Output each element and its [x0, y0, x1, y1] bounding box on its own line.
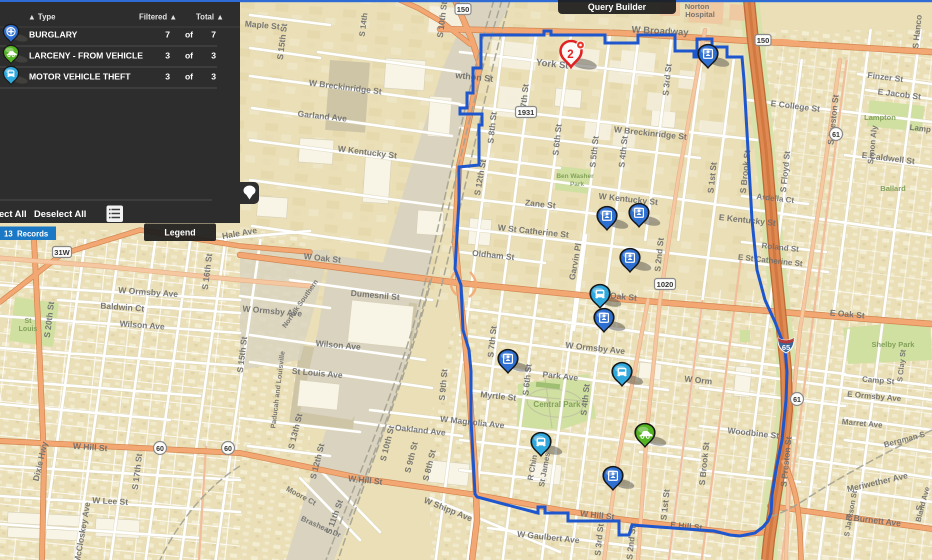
svg-text:1020: 1020 [657, 280, 674, 289]
svg-text:Ballard: Ballard [880, 184, 906, 193]
svg-text:LARCENY - FROM VEHICLE: LARCENY - FROM VEHICLE [29, 51, 143, 61]
svg-text:7: 7 [211, 30, 216, 40]
svg-text:of: of [185, 51, 193, 61]
svg-text:of: of [185, 30, 193, 40]
svg-text:61: 61 [793, 397, 801, 404]
svg-text:65: 65 [782, 343, 790, 352]
svg-text:Louis: Louis [19, 326, 38, 333]
svg-text:3: 3 [165, 72, 170, 82]
svg-text:150: 150 [757, 36, 770, 45]
svg-text:Park: Park [570, 181, 584, 188]
svg-text:61: 61 [832, 132, 840, 139]
svg-text:BURGLARY: BURGLARY [29, 30, 78, 40]
svg-text:▲ Type: ▲ Type [28, 13, 56, 22]
svg-text:Filtered ▲: Filtered ▲ [139, 13, 177, 22]
svg-text:3: 3 [211, 72, 216, 82]
svg-text:St: St [25, 318, 33, 325]
svg-text:ect All: ect All [0, 209, 27, 219]
svg-text:W Lee St: W Lee St [92, 495, 129, 507]
svg-text:13 Records: 13 Records [4, 230, 49, 239]
svg-text:150: 150 [457, 5, 470, 14]
svg-text:Lampton: Lampton [864, 113, 896, 122]
svg-text:60: 60 [156, 446, 164, 453]
svg-text:Query Builder: Query Builder [588, 2, 647, 12]
svg-text:MOTOR VEHICLE THEFT: MOTOR VEHICLE THEFT [29, 72, 131, 82]
svg-text:Ben Washer: Ben Washer [556, 173, 594, 180]
svg-text:3: 3 [211, 51, 216, 61]
svg-text:Legend: Legend [164, 228, 195, 238]
svg-text:of: of [185, 72, 193, 82]
svg-text:31W: 31W [54, 248, 70, 257]
svg-text:3: 3 [165, 51, 170, 61]
svg-text:Central Park: Central Park [533, 400, 581, 409]
svg-text:Total ▲: Total ▲ [196, 13, 224, 22]
svg-text:Hospital: Hospital [685, 10, 715, 19]
svg-text:Shelby Park: Shelby Park [872, 340, 916, 349]
svg-text:7: 7 [165, 30, 170, 40]
svg-text:2: 2 [567, 49, 573, 61]
svg-text:1931: 1931 [518, 108, 535, 117]
svg-text:Deselect All: Deselect All [34, 209, 86, 219]
svg-text:60: 60 [224, 446, 232, 453]
